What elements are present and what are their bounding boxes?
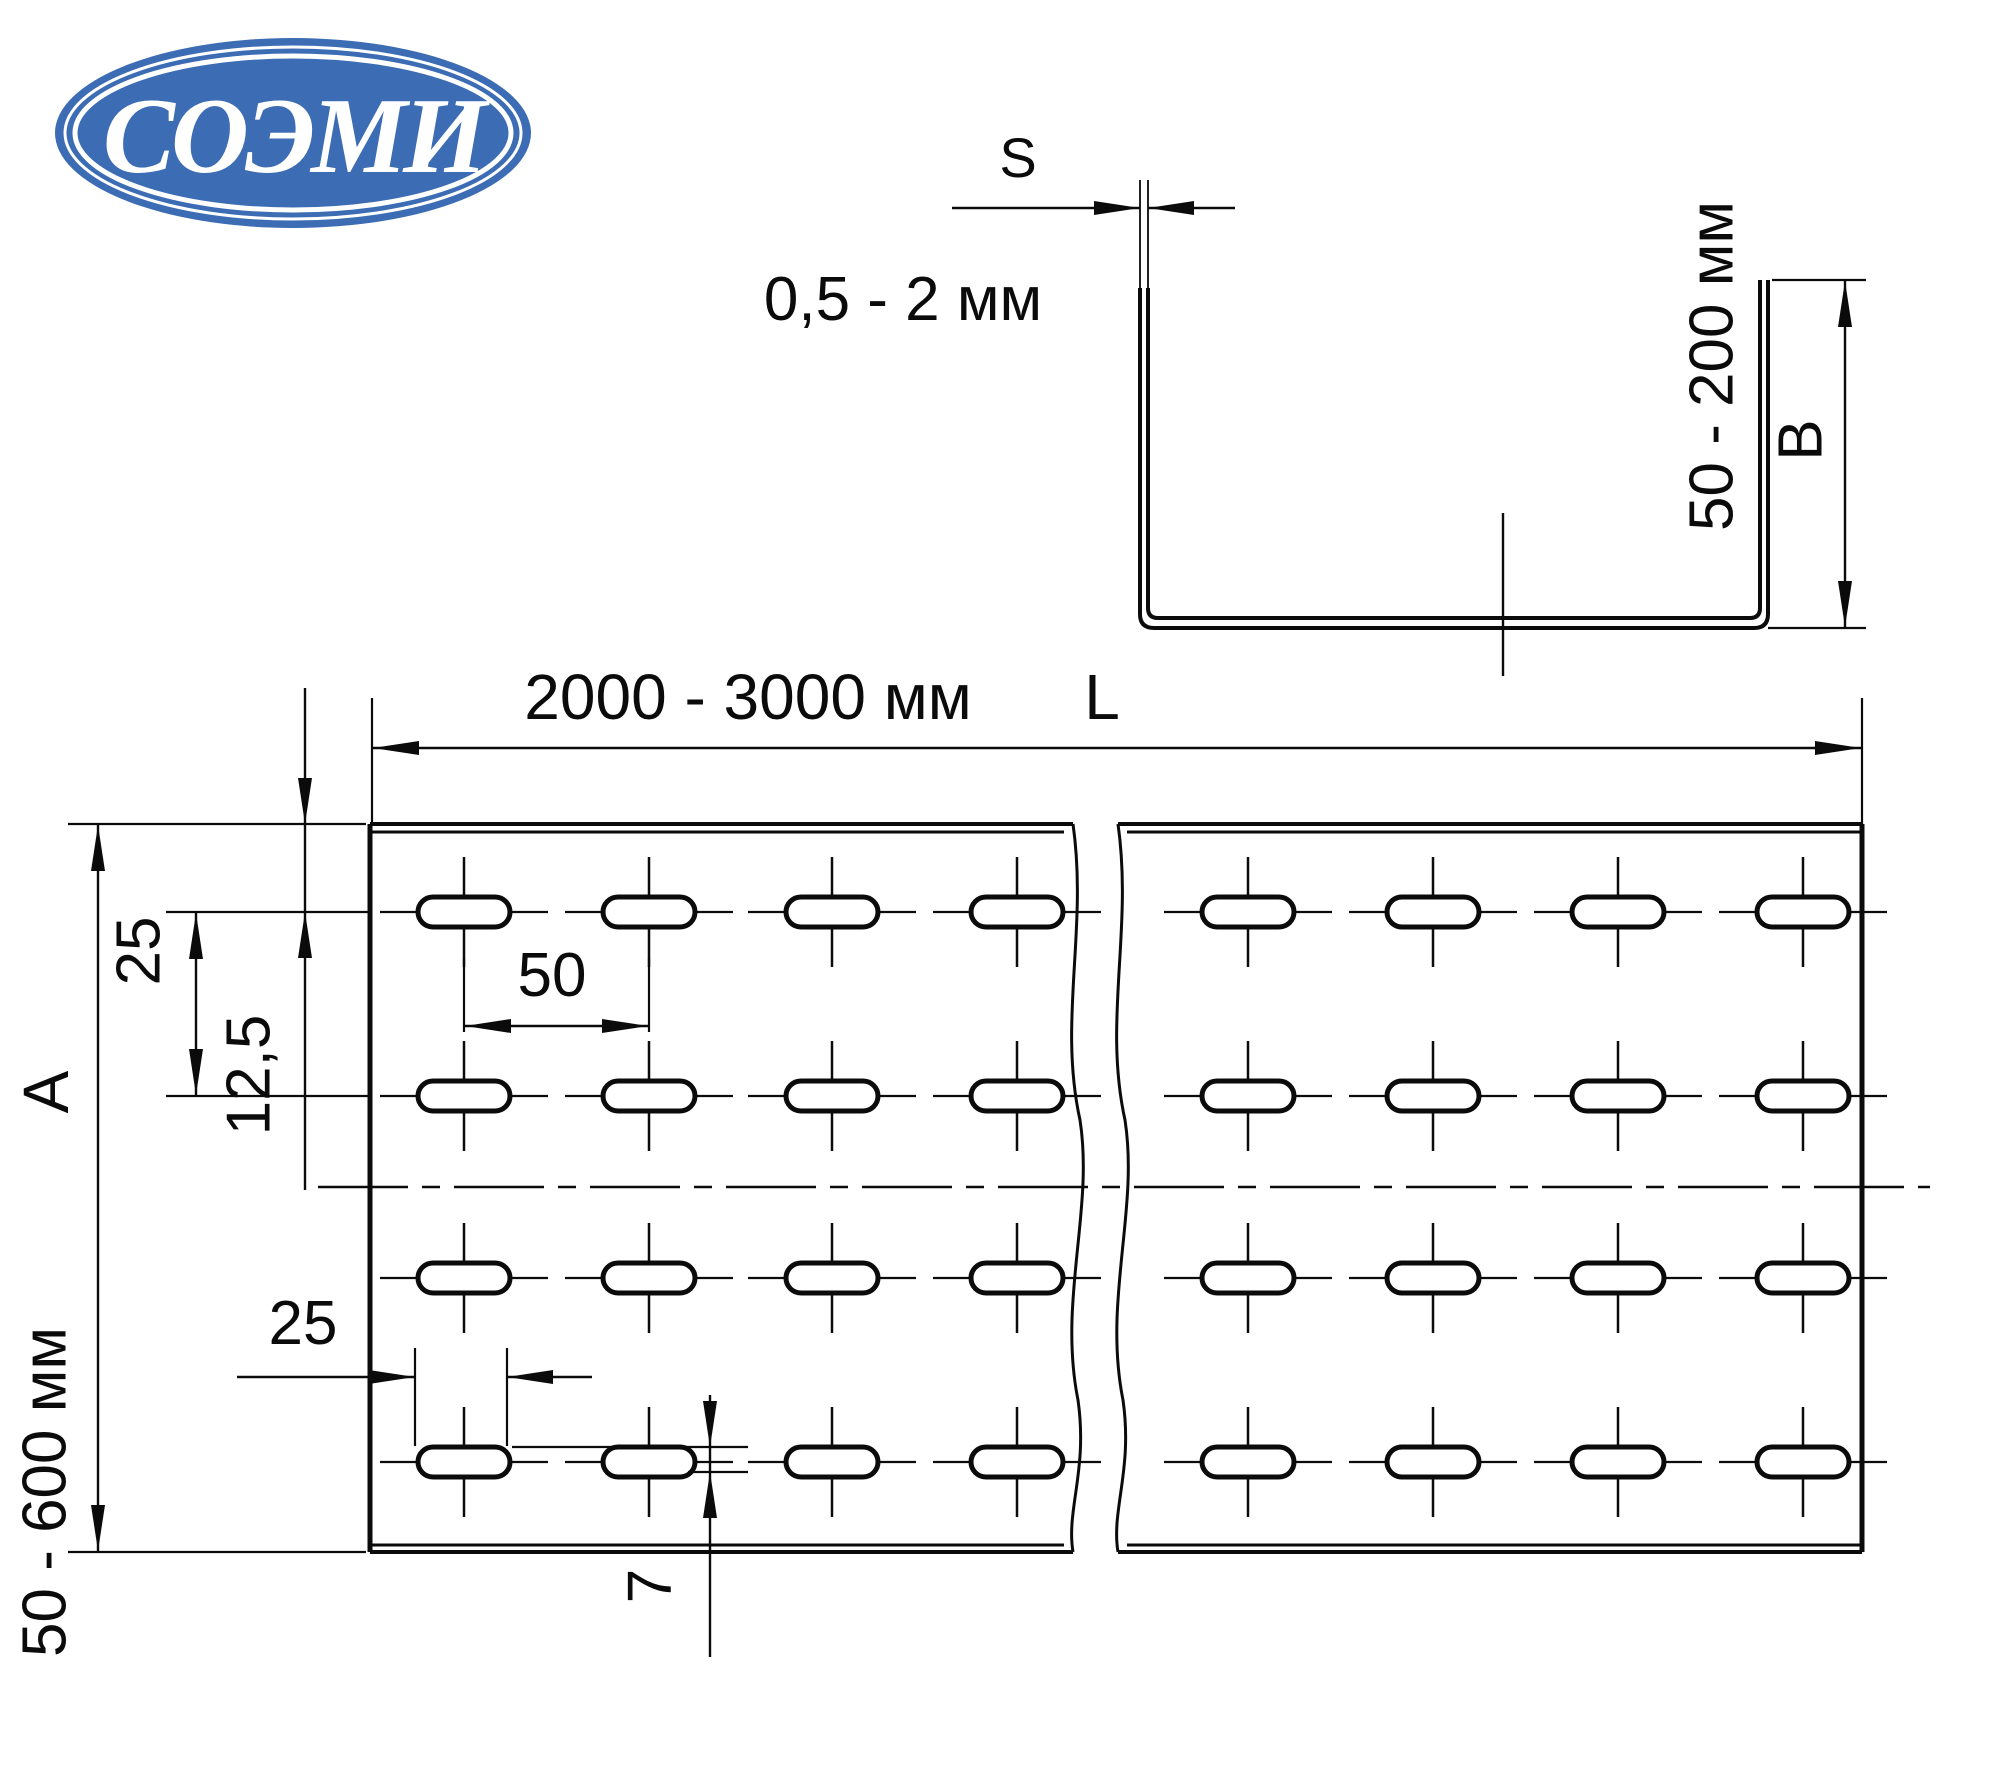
perforation-slot — [933, 1041, 1101, 1151]
arrowhead — [91, 825, 105, 871]
perforation-slot — [1164, 1407, 1332, 1517]
side-height-value: 50 - 200 мм — [1678, 201, 1747, 531]
arrowhead — [703, 1401, 717, 1447]
perforation-slot — [748, 1041, 916, 1151]
channel-outline-inner — [1148, 280, 1760, 618]
perforation-slot — [380, 1041, 548, 1151]
arrowhead — [602, 1019, 648, 1033]
channel-outline-outer — [1140, 280, 1768, 628]
arrowhead — [1838, 281, 1852, 327]
perforation-slot — [933, 1223, 1101, 1333]
width-value: 50 - 600 мм — [11, 1327, 80, 1657]
thickness-label: S — [999, 126, 1036, 189]
arrowhead — [1838, 581, 1852, 627]
slot-width-value: 7 — [616, 1569, 685, 1603]
cross-section-view: S 0,5 - 2 мм 50 - 200 мм B — [764, 126, 1866, 676]
arrowhead — [298, 778, 312, 824]
arrowhead — [507, 1370, 553, 1384]
arrowhead — [189, 1049, 203, 1095]
arrowhead — [465, 1019, 511, 1033]
perforation-slot — [1164, 1223, 1332, 1333]
arrowhead — [373, 741, 419, 755]
perforation-slot — [1349, 857, 1517, 967]
perforation-slot — [1349, 1223, 1517, 1333]
arrowhead — [91, 1505, 105, 1551]
perforation-slot — [1534, 1223, 1702, 1333]
perforation-slot — [1534, 1041, 1702, 1151]
arrowhead — [298, 912, 312, 958]
perforation-slot — [565, 1041, 733, 1151]
slot-length-value: 25 — [269, 1289, 338, 1358]
logo-text: СОЭМИ — [103, 77, 490, 196]
arrowhead — [1815, 741, 1861, 755]
perforation-slot — [1164, 1041, 1332, 1151]
perforation-slot — [748, 1407, 916, 1517]
length-label: L — [1084, 661, 1120, 733]
perforation-slot — [748, 1223, 916, 1333]
arrowhead — [1094, 201, 1140, 215]
width-label: A — [10, 1070, 82, 1113]
perforation-slot — [380, 1223, 548, 1333]
arrowhead — [369, 1370, 415, 1384]
perforation-slot — [748, 857, 916, 967]
column-spacing-value: 50 — [518, 941, 587, 1010]
technical-drawing-page: СОЭМИ S 0,5 - 2 мм 50 - 200 мм B — [0, 0, 2000, 1771]
perforation-slot — [1534, 857, 1702, 967]
logo: СОЭМИ — [55, 38, 531, 228]
drawing-canvas: СОЭМИ S 0,5 - 2 мм 50 - 200 мм B — [0, 0, 2000, 1771]
side-height-label: B — [1767, 419, 1836, 460]
first-row-offset-value: 12,5 — [215, 1015, 284, 1136]
slot-length-dimension — [237, 1348, 592, 1446]
perforation-slot — [1349, 1041, 1517, 1151]
row-spacing-value: 25 — [105, 917, 174, 986]
arrowhead — [189, 913, 203, 959]
perforation-slot — [1349, 1407, 1517, 1517]
length-value: 2000 - 3000 мм — [524, 661, 971, 733]
thickness-value: 0,5 - 2 мм — [764, 265, 1042, 334]
arrowhead — [1148, 201, 1194, 215]
first-row-offset-dimension — [298, 688, 312, 1190]
arrowhead — [703, 1472, 717, 1518]
perforation-slot — [565, 857, 733, 967]
perforation-slot — [1534, 1407, 1702, 1517]
perforation-slot — [565, 1223, 733, 1333]
perforation-slot — [380, 1407, 548, 1517]
perforation-slot — [1164, 857, 1332, 967]
plan-view: 2000 - 3000 мм L A 50 - 600 мм 25 12,5 — [10, 661, 1930, 1657]
slot-width-dimension — [512, 1395, 748, 1657]
